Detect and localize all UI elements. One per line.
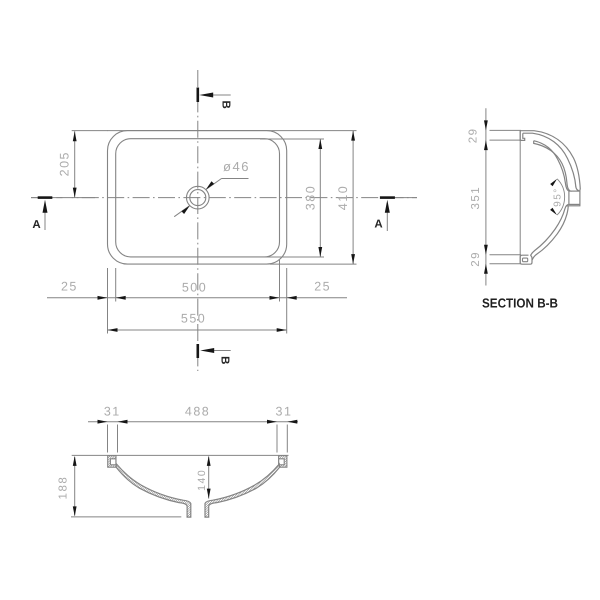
svg-text:31: 31: [104, 405, 121, 419]
svg-text:SECTION B-B: SECTION B-B: [482, 295, 558, 310]
svg-text:140: 140: [196, 469, 208, 491]
svg-text:410: 410: [336, 185, 350, 210]
svg-text:A: A: [374, 219, 382, 231]
svg-text:25: 25: [314, 279, 331, 293]
svg-text:25: 25: [61, 280, 78, 294]
svg-text:488: 488: [185, 405, 210, 419]
svg-text:29: 29: [467, 127, 479, 143]
svg-text:31: 31: [276, 405, 293, 419]
svg-text:B: B: [219, 101, 231, 109]
svg-text:ø46: ø46: [223, 159, 250, 174]
svg-text:205: 205: [58, 151, 72, 176]
svg-text:95°: 95°: [553, 187, 564, 207]
svg-text:A: A: [32, 219, 40, 231]
svg-text:550: 550: [181, 311, 206, 325]
svg-text:380: 380: [304, 185, 318, 210]
svg-text:351: 351: [470, 186, 482, 210]
svg-text:188: 188: [58, 476, 70, 500]
svg-text:B: B: [219, 356, 231, 364]
svg-text:29: 29: [470, 251, 482, 267]
svg-text:500: 500: [182, 280, 207, 294]
